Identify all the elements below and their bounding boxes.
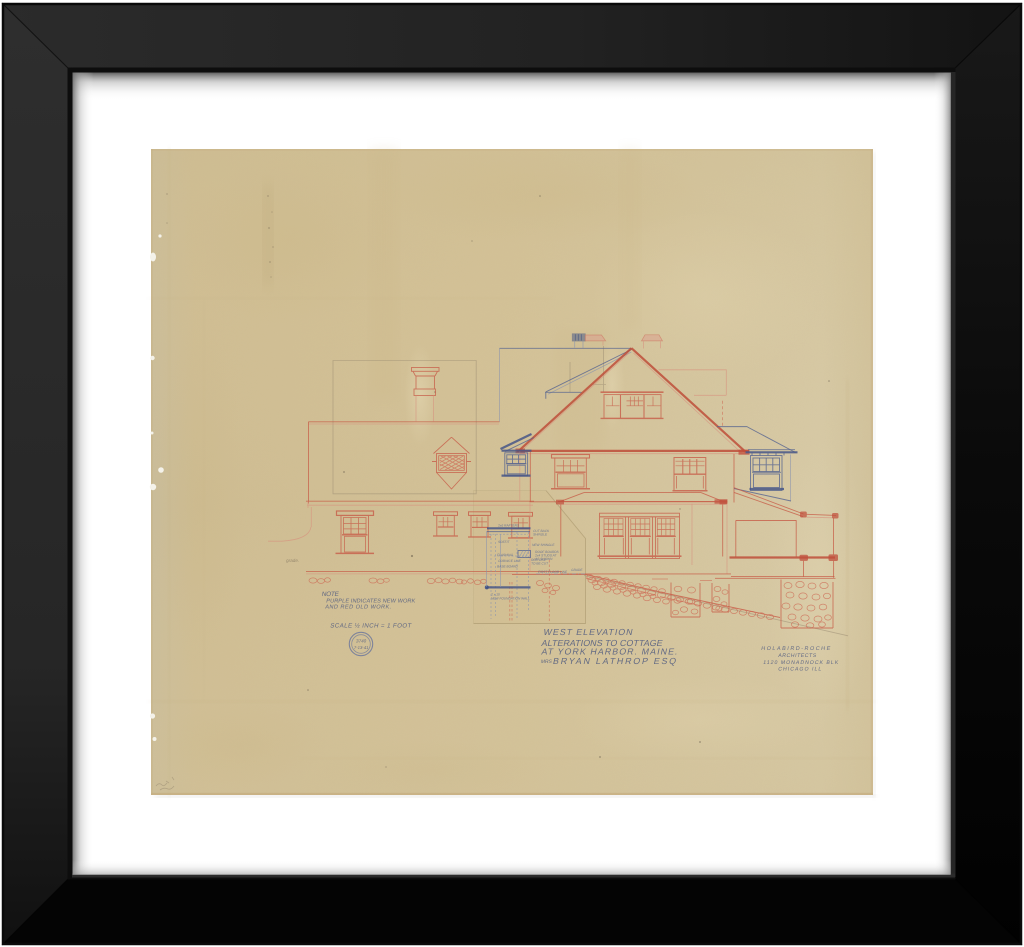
svg-text:AND RED OLD WORK.: AND RED OLD WORK. bbox=[325, 604, 392, 610]
svg-text:GRADE: GRADE bbox=[571, 568, 583, 572]
svg-text:FIRST FLOOR LINE: FIRST FLOOR LINE bbox=[538, 570, 568, 574]
svg-text:SOFFIT: SOFFIT bbox=[498, 540, 510, 544]
svg-text:SCALE ½ INCH = 1 FOOT: SCALE ½ INCH = 1 FOOT bbox=[330, 623, 412, 630]
svg-text:FLASHING: FLASHING bbox=[497, 553, 514, 557]
svg-text:NOTE: NOTE bbox=[321, 591, 340, 598]
svg-text:NEW SHINGLE: NEW SHINGLE bbox=[532, 543, 555, 547]
svg-text:NEW FOUNDATION WALL: NEW FOUNDATION WALL bbox=[491, 597, 530, 601]
svg-text:7-13-41: 7-13-41 bbox=[354, 645, 370, 650]
svg-text:grade.: grade. bbox=[286, 558, 300, 563]
svg-text:BASE BOARD: BASE BOARD bbox=[497, 565, 519, 569]
svg-text:CHICAGO ILL: CHICAGO ILL bbox=[778, 667, 822, 673]
svg-text:3740: 3740 bbox=[356, 639, 367, 644]
svg-text:ARCHITECTS: ARCHITECTS bbox=[778, 653, 818, 659]
svg-text:MRS: MRS bbox=[540, 659, 553, 665]
svg-text:1120 MONADNOCK BLK: 1120 MONADNOCK BLK bbox=[763, 660, 840, 666]
svg-text:SHINGLE: SHINGLE bbox=[533, 533, 548, 537]
svg-text:2x6 RAFTERS: 2x6 RAFTERS bbox=[498, 524, 519, 528]
svg-text:WEST ELEVATION: WEST ELEVATION bbox=[543, 627, 634, 637]
svg-text:CORNICE LINE: CORNICE LINE bbox=[498, 559, 521, 563]
svg-text:TO BE CUT: TO BE CUT bbox=[531, 562, 549, 566]
